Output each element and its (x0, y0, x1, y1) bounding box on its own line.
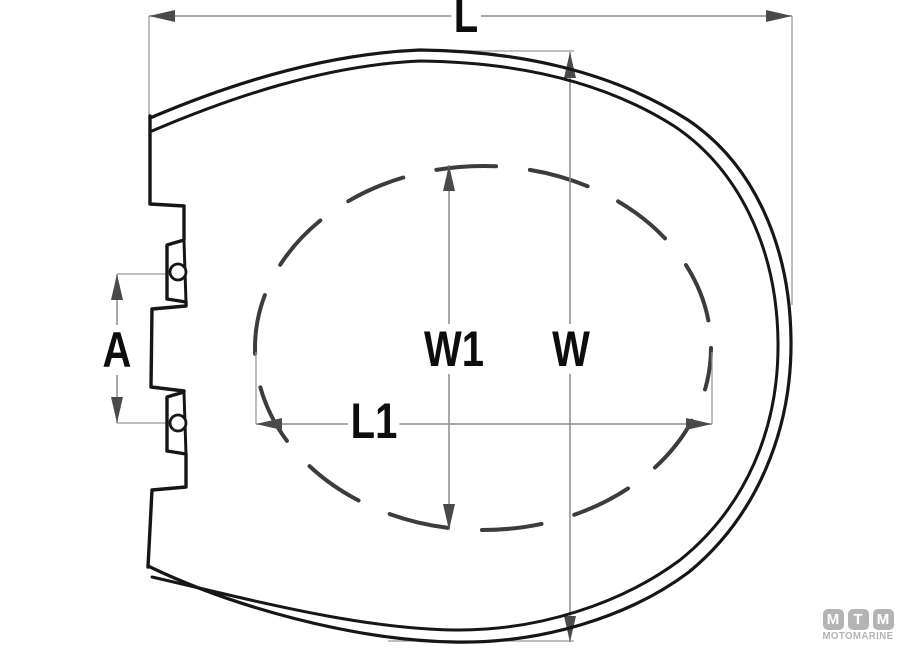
logo-tile-1: M (823, 609, 844, 630)
dim-label-inner-length: L1 (348, 396, 399, 446)
brand-logo: M T M MOTOMARINE (818, 609, 898, 642)
dim-label-hinge-pitch: A (100, 325, 134, 375)
logo-tiles: M T M (818, 609, 898, 630)
hinge-edge-contour (148, 116, 186, 567)
hinge-hole-1 (170, 264, 186, 280)
diagram-canvas: L W1 W L1 A M T M MOTOMARINE (0, 0, 900, 648)
logo-name: MOTOMARINE (819, 631, 897, 642)
arrow-L-left (149, 10, 175, 22)
dim-label-inner-width: W1 (422, 324, 487, 374)
dim-label-width: W (550, 324, 593, 374)
logo-tile-2: T (848, 609, 869, 630)
arrow-L-right (766, 10, 792, 22)
dim-label-length: L (451, 0, 480, 40)
arrow-A-bottom (111, 397, 123, 423)
arrow-W-top (564, 52, 576, 78)
arrow-L1-left (256, 418, 282, 430)
logo-tile-3: M (873, 609, 894, 630)
arrow-L1-right (686, 418, 712, 430)
arrow-A-top (111, 274, 123, 300)
hinge-hole-2 (170, 415, 186, 431)
